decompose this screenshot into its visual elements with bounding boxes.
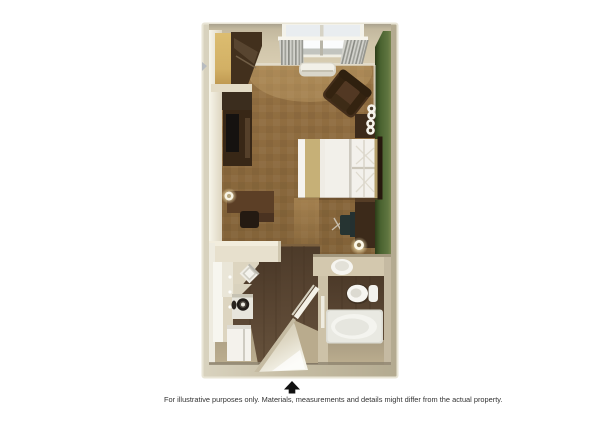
svg-text:For illustrative purposes only: For illustrative purposes only. Material… (164, 395, 502, 404)
